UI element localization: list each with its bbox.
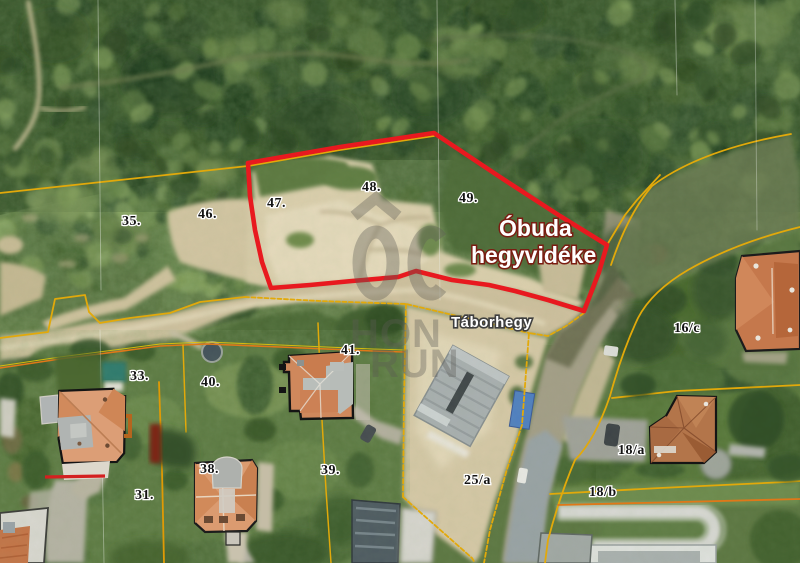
svg-text:46.: 46. — [198, 207, 217, 222]
svg-text:Táborhegy: Táborhegy — [451, 314, 532, 331]
svg-text:40.: 40. — [201, 375, 220, 390]
svg-text:33.: 33. — [130, 369, 149, 384]
svg-text:hegyvidéke: hegyvidéke — [471, 242, 596, 268]
svg-text:RUN: RUN — [370, 342, 460, 386]
svg-text:47.: 47. — [267, 196, 286, 211]
svg-text:31.: 31. — [135, 488, 154, 503]
svg-text:18/a: 18/a — [618, 443, 645, 458]
svg-text:35.: 35. — [122, 214, 141, 229]
svg-text:18/b: 18/b — [589, 485, 617, 500]
svg-text:41.: 41. — [341, 343, 360, 358]
svg-text:39.: 39. — [321, 463, 340, 478]
svg-text:48.: 48. — [362, 180, 381, 195]
svg-text:49.: 49. — [459, 191, 478, 206]
svg-text:Óbuda: Óbuda — [499, 214, 572, 241]
svg-text:16/c: 16/c — [674, 321, 700, 336]
svg-text:38.: 38. — [200, 462, 219, 477]
svg-text:25/a: 25/a — [464, 473, 491, 488]
